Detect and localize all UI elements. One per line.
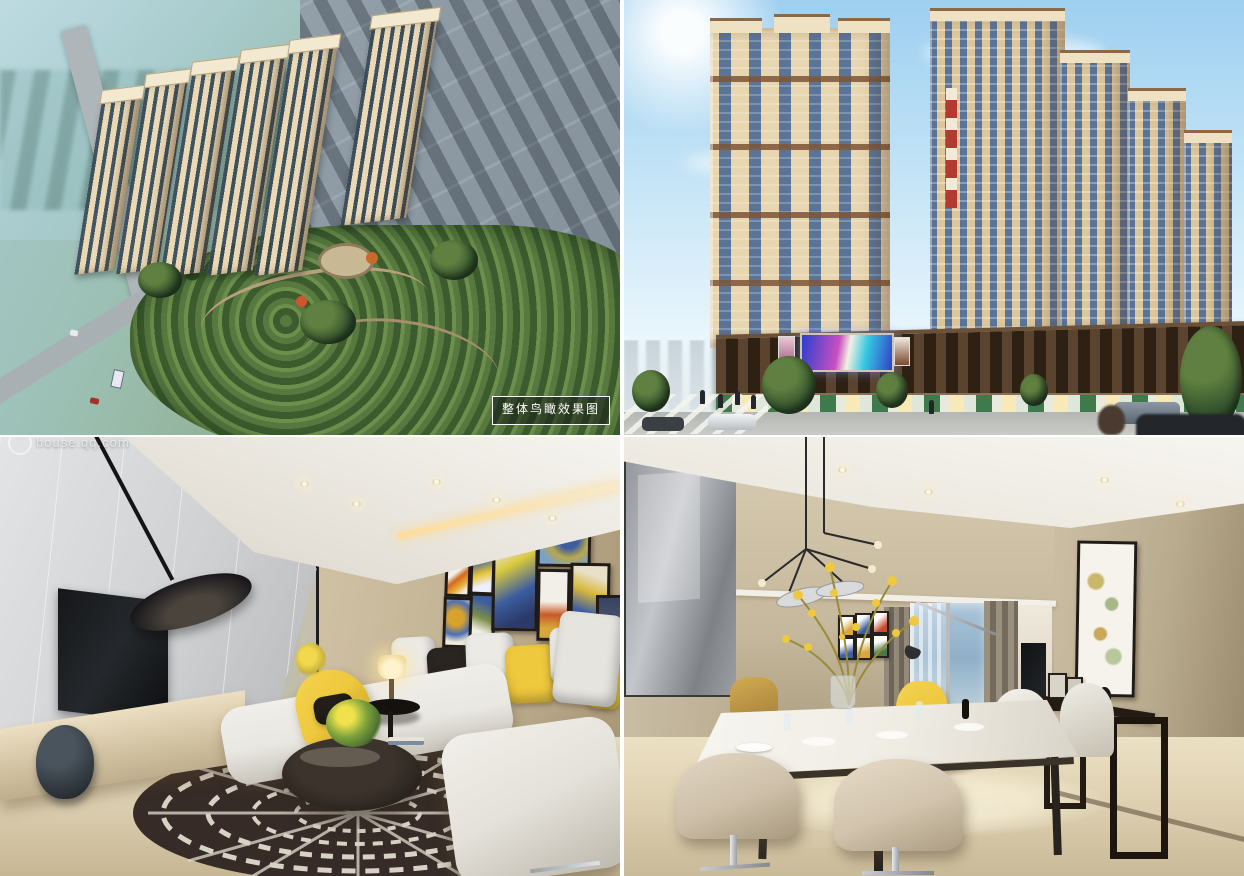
tr-tower-d-crown (1184, 130, 1232, 143)
aerial-label: 整体鸟瞰效果图 (492, 396, 610, 425)
tr-tower-left-crown-2 (774, 14, 830, 33)
lr-downlight-1 (432, 479, 441, 485)
tr-pedestrian-5 (929, 400, 934, 414)
dr-plate-4 (954, 723, 984, 731)
aerial-tree-blob-3 (430, 240, 478, 280)
tr-pedestrian-2 (718, 394, 723, 408)
tr-pedestrian-3 (735, 391, 740, 405)
tr-pedestrian-1 (700, 390, 705, 404)
dr-plate-1 (736, 743, 772, 752)
tr-foreground-car-roof (1136, 414, 1244, 435)
aerial-car-red (89, 397, 99, 405)
tr-tower-b-crown (1060, 50, 1130, 63)
lr-downlight-4 (352, 501, 361, 507)
aerial-plaza (318, 243, 374, 279)
lr-downlight-2 (492, 497, 501, 503)
lr-downlight-3 (548, 515, 557, 521)
tr-tower-left-crown-3 (838, 18, 890, 33)
dr-front-chair-right-feet (862, 871, 934, 875)
tr-tree-3 (876, 372, 908, 408)
screenshot-collage: 整体鸟瞰效果图 (0, 0, 1244, 876)
aerial-autumn-tree-2 (296, 296, 307, 307)
watermark-text: house.qq.com (36, 437, 130, 450)
tr-tower-c-crown (1128, 88, 1186, 101)
dr-glass-2 (846, 707, 853, 725)
tr-pedestrian-4 (751, 395, 756, 409)
lr-sofa-chaise (438, 714, 620, 876)
dr-front-chair-right-post (892, 847, 899, 873)
aerial-bus (110, 369, 125, 389)
tr-tower-left (710, 28, 890, 348)
dr-downlight-2 (924, 489, 933, 495)
tr-tree-2 (762, 356, 816, 414)
tr-tower-b (1060, 58, 1130, 346)
tr-tower-a-crown (930, 8, 1065, 21)
tr-tree-4 (1020, 374, 1048, 406)
lr-stone-vase (36, 725, 94, 799)
dr-mirror-reflection (638, 471, 700, 603)
tr-tower-sign (946, 88, 957, 208)
aerial-tree-blob-2 (300, 300, 356, 344)
panel-dining-room (624, 437, 1244, 876)
tr-tree-1 (632, 370, 670, 412)
tr-foreground-head (1098, 405, 1125, 435)
dr-front-chair-left-post (730, 835, 737, 867)
aerial-tree-blob-1 (138, 262, 182, 298)
tr-tower-left-crown-1 (710, 18, 762, 33)
lr-back-cushion-4 (551, 610, 620, 708)
lr-downlight-5 (300, 481, 309, 487)
tr-tower-d (1184, 138, 1232, 346)
dr-plate-2 (802, 737, 836, 746)
dr-front-chair-right (834, 759, 962, 851)
dr-vase (830, 675, 856, 709)
panel-street-elevation (624, 0, 1244, 435)
dr-console-photo-1 (1048, 673, 1067, 699)
dr-bottle-black (962, 699, 969, 719)
lr-table-flowers (326, 699, 382, 747)
lr-bouquet (296, 643, 326, 677)
lr-table-lamp-shade (378, 655, 406, 679)
dr-downlight-3 (1100, 477, 1109, 483)
dr-glass-1 (784, 713, 791, 731)
tr-car-white (708, 414, 756, 430)
dr-front-chair-left (676, 753, 798, 839)
tr-tower-c (1128, 96, 1186, 346)
panel-aerial-overview: 整体鸟瞰效果图 (0, 0, 620, 435)
dr-downlight-4 (1176, 501, 1185, 507)
dr-plate-3 (876, 731, 908, 739)
lr-table-lamp-body (389, 679, 394, 701)
tr-car-dark (642, 417, 684, 431)
dr-console-leg-right (1110, 717, 1168, 859)
lr-table-books (388, 737, 424, 745)
dr-artwork (1075, 540, 1138, 697)
aerial-autumn-tree-1 (366, 252, 378, 264)
lr-coffee-table-shine (300, 747, 380, 767)
tr-poster-right (894, 337, 910, 366)
dr-flower-blooms (782, 562, 919, 651)
panel-living-room: house.qq.com (0, 437, 620, 876)
tr-led-screen (800, 333, 894, 372)
